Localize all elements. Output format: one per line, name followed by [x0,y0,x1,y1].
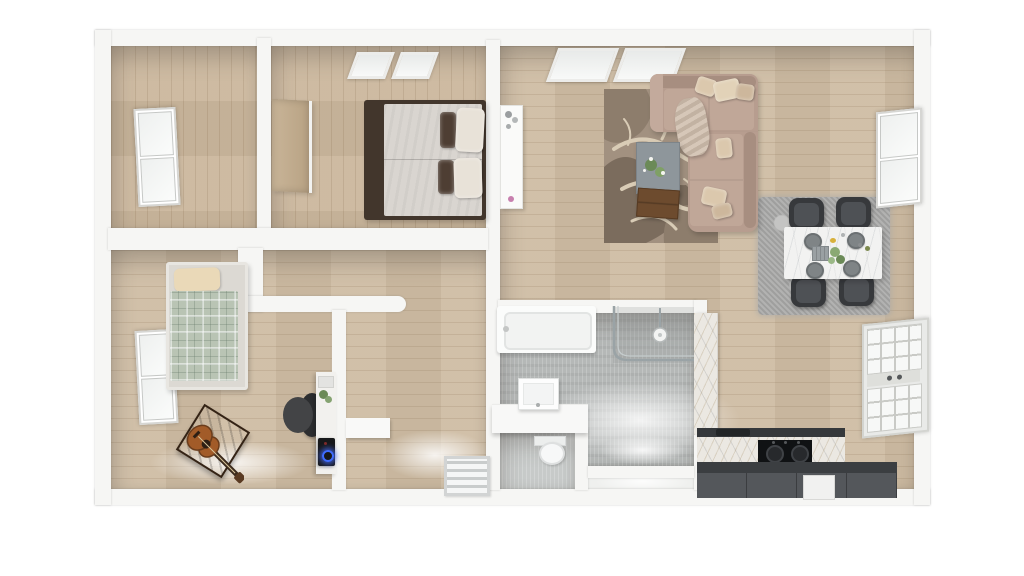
dining-chair [791,275,826,307]
hallway-wall-shelf [346,418,390,438]
wall-hung-basin [518,378,559,410]
door-handle [887,375,892,381]
coffee-table [636,142,680,194]
wall-study-bedroom [257,38,271,232]
range-knob [772,441,775,444]
wall-outer-right [914,30,930,505]
skylight-pane [546,48,619,82]
sofa-back [744,132,756,228]
bathtub [497,306,596,353]
door-glass-top [867,323,922,375]
decor-item-pink [508,196,514,202]
range-knob [797,441,800,444]
flower-white [643,169,646,172]
wall-bath-bottom [588,466,694,478]
wall-wc-right [575,430,588,490]
kitchen-island [697,462,897,498]
place-setting [806,262,824,279]
wall-outer-left [95,30,111,505]
window-pane [138,111,174,157]
desk-papers [318,376,334,388]
sofa-pillow [715,137,733,159]
decor-item [506,124,511,129]
flower-white [649,157,653,161]
tub-faucet [503,326,509,332]
skylight-pane [347,52,395,79]
basin-faucet [536,403,540,407]
kitchen-sink [716,429,750,436]
gaming-pc [318,438,335,466]
living-window-right [876,108,922,209]
decor-item [505,111,512,118]
centerpiece-plant [828,257,835,264]
dining-chair [836,197,871,229]
wall-mid-horizontal [108,228,488,250]
place-setting [847,232,865,249]
flower-white [661,171,665,175]
gas-range [758,440,812,462]
open-wood-door-panel [272,99,312,193]
pc-led-ring [322,450,334,462]
sofa-arm [650,74,663,132]
island-cabinets [697,473,897,498]
range-burner [766,445,784,463]
window-pane [140,157,176,203]
wall-outer-top [95,30,930,46]
desk-plant [325,396,332,403]
electric-guitar [142,412,244,494]
basin-bowl [523,383,554,405]
bed-pillow-dark [440,112,456,148]
slatted-floor-mat [444,456,490,496]
table-item-olive [865,246,870,251]
tub-basin [504,312,592,350]
door-glass-bottom [867,383,922,433]
bedroom-skylight [347,52,439,79]
marble-wall-panel [694,313,718,435]
chair-seat [283,397,313,433]
sofa-pillow [735,83,755,101]
table-basket [812,246,829,261]
dining-table [784,227,882,279]
walk-in-shower [608,304,696,366]
kitchen-counter [697,428,845,462]
window-pane [880,157,918,204]
built-in-appliance [803,475,835,500]
bed-pillow [453,158,482,199]
table-item [858,243,862,247]
window-pane [880,112,918,159]
sideboard [500,105,523,209]
door-handle [897,374,902,380]
centerpiece-plant [836,255,845,264]
island-top [697,462,897,473]
table-item [841,233,845,237]
bed-pillow-dark [438,160,454,194]
single-bed [166,262,248,390]
place-setting [843,260,861,277]
wooden-tray [636,188,680,220]
floor-study-room [111,46,257,230]
glazed-patio-door [862,317,929,438]
floor-plan-render [0,0,1024,576]
pc-led [324,442,327,445]
bed-pillow [174,267,221,292]
toilet [532,436,568,462]
range-burner [791,445,809,463]
study-window [133,107,180,207]
decor-item [512,117,518,123]
plaid-blanket [170,291,238,381]
floor-bath-vestibule [588,478,694,489]
toilet-bowl [539,442,565,465]
dining-chair [789,198,824,230]
range-knob [784,441,787,444]
table-item-yellow [830,238,836,243]
bed-pillow [455,107,485,152]
wall-hall-band [238,296,406,312]
